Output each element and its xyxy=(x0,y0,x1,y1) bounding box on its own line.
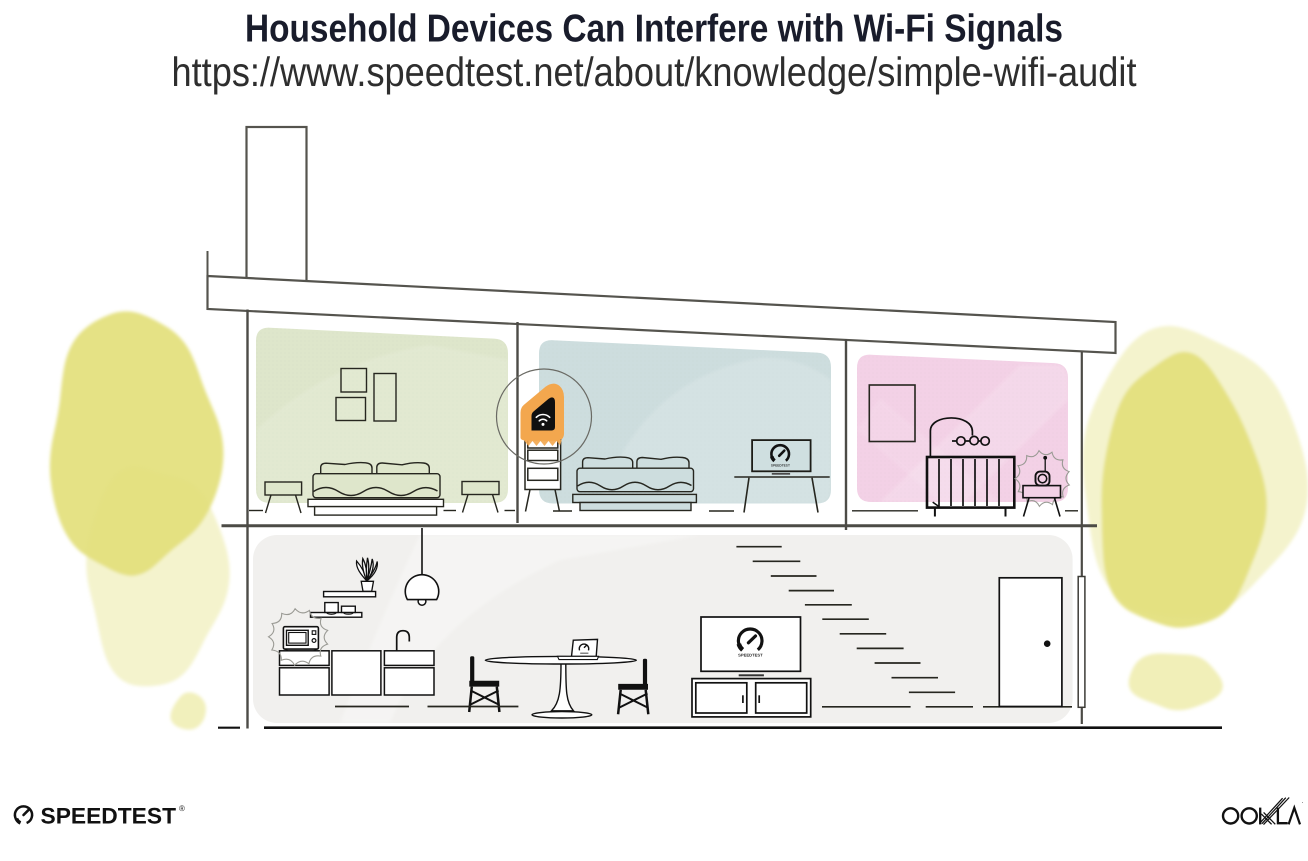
svg-text:SPEEDTEST: SPEEDTEST xyxy=(738,652,763,657)
svg-text:https://www.speedtest.net/abou: https://www.speedtest.net/about/knowledg… xyxy=(172,49,1138,95)
svg-text:·: · xyxy=(1302,800,1304,806)
svg-text:SPEEDTEST: SPEEDTEST xyxy=(771,464,790,468)
svg-text:SPEEDTEST: SPEEDTEST xyxy=(41,803,177,828)
svg-text:®: ® xyxy=(179,804,185,813)
svg-text:Household Devices Can Interfer: Household Devices Can Interfere with Wi-… xyxy=(245,8,1063,51)
